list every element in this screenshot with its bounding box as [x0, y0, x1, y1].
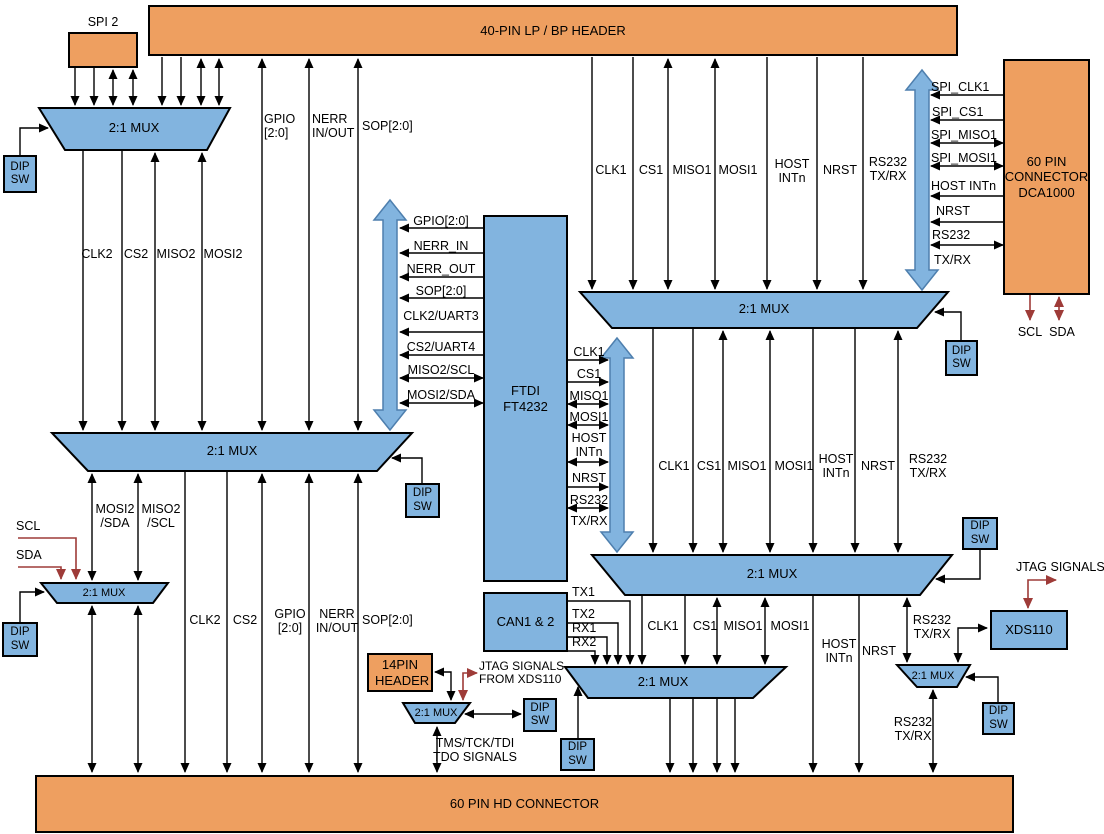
- ftdi-txrx-label: TX/RX: [567, 514, 611, 528]
- gpio-col-label: GPIO [2:0]: [264, 112, 312, 140]
- lp-bp-header: 40-PIN LP / BP HEADER: [148, 5, 958, 56]
- jtag-from-xds-label: JTAG SIGNALS FROM XDS110: [479, 660, 569, 687]
- mux-bottom-center-label: 2:1 MUX: [613, 675, 713, 690]
- host-intn-top-col-label: HOST INTn: [771, 157, 813, 185]
- dip-sw-mid-right: DIP SW: [962, 517, 998, 550]
- mosi2-sda-col-label: MOSI2 /SDA: [92, 502, 138, 530]
- tx1-label: TX1: [572, 585, 604, 599]
- sop-col-label: SOP[2:0]: [362, 119, 416, 133]
- xds110-label: XDS110: [1005, 622, 1052, 638]
- gpio-bottom-col-label: GPIO [2:0]: [268, 607, 312, 635]
- dca1000-connector: 60 PIN CONNECTOR DCA1000: [1003, 59, 1090, 295]
- ftdi-gpio-label: GPIO[2:0]: [400, 214, 482, 228]
- hd-connector-label: 60 PIN HD CONNECTOR: [450, 796, 599, 812]
- dip-sw-label: DIP SW: [7, 626, 33, 652]
- cs2-col-label: CS2: [121, 247, 151, 261]
- ftdi-cs2-uart4-label: CS2/UART4: [400, 340, 482, 354]
- nrst-spi-label: NRST: [936, 204, 980, 218]
- mux-rs232-label: 2:1 MUX: [903, 670, 963, 682]
- ftdi-label: FTDI FT4232: [498, 383, 553, 414]
- clk1-bottom-col-label: CLK1: [644, 619, 682, 633]
- ftdi-mosi1-label: MOSI1: [567, 410, 611, 424]
- header-14pin: 14PIN HEADER: [367, 653, 433, 692]
- mux-top-left-label: 2:1 MUX: [84, 121, 184, 136]
- ftdi-host-intn-label: HOST INTn: [569, 431, 609, 459]
- dip-sw-rs232: DIP SW: [982, 702, 1015, 735]
- ftdi-miso2-scl-label: MISO2/SCL: [400, 363, 482, 377]
- clk2-bottom-col-label: CLK2: [186, 613, 224, 627]
- hd-connector: 60 PIN HD CONNECTOR: [35, 775, 1014, 833]
- block-diagram: SPI 2 40-PIN LP / BP HEADER 60 PIN CONNE…: [0, 0, 1104, 834]
- ftdi-cs1-label: CS1: [567, 367, 611, 381]
- clk1-mid-col-label: CLK1: [656, 459, 692, 473]
- ftdi-nerr-in-label: NERR_IN: [400, 239, 482, 253]
- tx2-label: TX2: [572, 607, 604, 621]
- nrst-top-col-label: NRST: [820, 163, 860, 177]
- mosi1-bottom-col-label: MOSI1: [767, 619, 813, 633]
- scl-dca-label: SCL: [1013, 325, 1047, 339]
- miso2-col-label: MISO2: [154, 247, 198, 261]
- miso2-scl-col-label: MISO2 /SCL: [138, 502, 184, 530]
- dip-sw-top-left: DIP SW: [3, 155, 37, 193]
- mosi1-mid-col-label: MOSI1: [771, 459, 817, 473]
- spi-mosi1-label: SPI_MOSI1: [931, 151, 1005, 165]
- sda-left-label: SDA: [16, 548, 50, 562]
- ftdi-nerr-out-label: NERR_OUT: [400, 262, 482, 276]
- nerr-bottom-col-label: NERR IN/OUT: [311, 607, 363, 635]
- miso1-mid-col-label: MISO1: [724, 459, 770, 473]
- ftdi-clk2-uart3-label: CLK2/UART3: [400, 309, 482, 323]
- dca1000-label: 60 PIN CONNECTOR DCA1000: [1005, 154, 1089, 201]
- jtag-signals-label: JTAG SIGNALS: [1016, 560, 1104, 574]
- nrst-bottom-col-label: NRST: [860, 644, 898, 658]
- host-intn-mid-col-label: HOST INTn: [815, 452, 857, 480]
- spi2-label: SPI 2: [80, 15, 126, 29]
- can-block: CAN1 & 2: [483, 592, 568, 652]
- lp-bp-header-label: 40-PIN LP / BP HEADER: [480, 23, 625, 39]
- dip-sw-top-right: DIP SW: [945, 340, 978, 376]
- rs232-above-mux-label: RS232 TX/RX: [908, 613, 956, 641]
- dip-sw-label: DIP SW: [410, 487, 436, 513]
- miso1-bottom-col-label: MISO1: [720, 619, 766, 633]
- dip-sw-label: DIP SW: [949, 345, 975, 371]
- scl-left-label: SCL: [16, 519, 50, 533]
- dip-sw-small-left: DIP SW: [2, 622, 38, 657]
- host-intn-spi-label: HOST INTn: [931, 179, 1009, 193]
- dip-sw-label: DIP SW: [527, 702, 553, 728]
- tms-signals-label: TMS/TCK/TDI TDO SIGNALS: [426, 736, 524, 764]
- rx1-label: RX1: [572, 621, 604, 635]
- ftdi-nrst-label: NRST: [567, 471, 611, 485]
- miso1-top-col-label: MISO1: [669, 163, 715, 177]
- dip-sw-label: DIP SW: [986, 705, 1012, 731]
- mux-mid-left-label: 2:1 MUX: [182, 444, 282, 459]
- rs232-top-col-label: RS232 TX/RX: [863, 155, 913, 183]
- header-14pin-label: 14PIN HEADER: [375, 657, 425, 688]
- rs232-spi-label: RS232: [932, 228, 982, 242]
- ftdi-clk1-label: CLK1: [567, 345, 611, 359]
- dip-sw-jtag: DIP SW: [523, 698, 557, 732]
- nrst-mid-col-label: NRST: [858, 459, 898, 473]
- txrx-spi-label: TX/RX: [934, 253, 982, 267]
- spi-clk1-label: SPI_CLK1: [931, 80, 999, 94]
- spi2-connector: [68, 32, 138, 68]
- sda-dca-label: SDA: [1045, 325, 1079, 339]
- cs2-bottom-col-label: CS2: [228, 613, 262, 627]
- cs1-top-col-label: CS1: [636, 163, 666, 177]
- clk1-top-col-label: CLK1: [594, 163, 628, 177]
- ftdi-rs232-label: RS232: [567, 493, 611, 507]
- rs232-mid-col-label: RS232 TX/RX: [903, 452, 953, 480]
- ftdi-chip: FTDI FT4232: [483, 215, 568, 582]
- ftdi-sop-label: SOP[2:0]: [400, 284, 482, 298]
- host-intn-bottom-col-label: HOST INTn: [818, 637, 860, 665]
- spi-miso1-label: SPI_MISO1: [931, 128, 1005, 142]
- dip-sw-label: DIP SW: [565, 741, 591, 767]
- spi-cs1-label: SPI_CS1: [932, 105, 994, 119]
- mux-mid-right-label: 2:1 MUX: [722, 567, 822, 582]
- dip-sw-bottom-center: DIP SW: [560, 738, 595, 771]
- ftdi-mosi2-sda-label: MOSI2/SDA: [400, 388, 482, 402]
- mux-small-left-label: 2:1 MUX: [62, 587, 146, 599]
- can-label: CAN1 & 2: [497, 614, 555, 630]
- rx2-label: RX2: [572, 635, 604, 649]
- cs1-mid-col-label: CS1: [694, 459, 724, 473]
- mux-jtag-label: 2:1 MUX: [406, 707, 466, 719]
- dip-sw-label: DIP SW: [7, 161, 33, 187]
- clk2-col-label: CLK2: [79, 247, 115, 261]
- mux-top-right-label: 2:1 MUX: [714, 302, 814, 317]
- mosi2-col-label: MOSI2: [201, 247, 245, 261]
- cs1-bottom-col-label: CS1: [689, 619, 721, 633]
- ftdi-miso1-label: MISO1: [567, 389, 611, 403]
- dip-sw-mid-left: DIP SW: [405, 483, 440, 518]
- rs232-below-mux-label: RS232 TX/RX: [888, 715, 938, 743]
- dip-sw-label: DIP SW: [967, 520, 993, 546]
- mosi1-top-col-label: MOSI1: [714, 163, 762, 177]
- sop-bottom-col-label: SOP[2:0]: [362, 613, 416, 627]
- xds110-block: XDS110: [990, 610, 1068, 650]
- nerr-col-label: NERR IN/OUT: [312, 112, 366, 140]
